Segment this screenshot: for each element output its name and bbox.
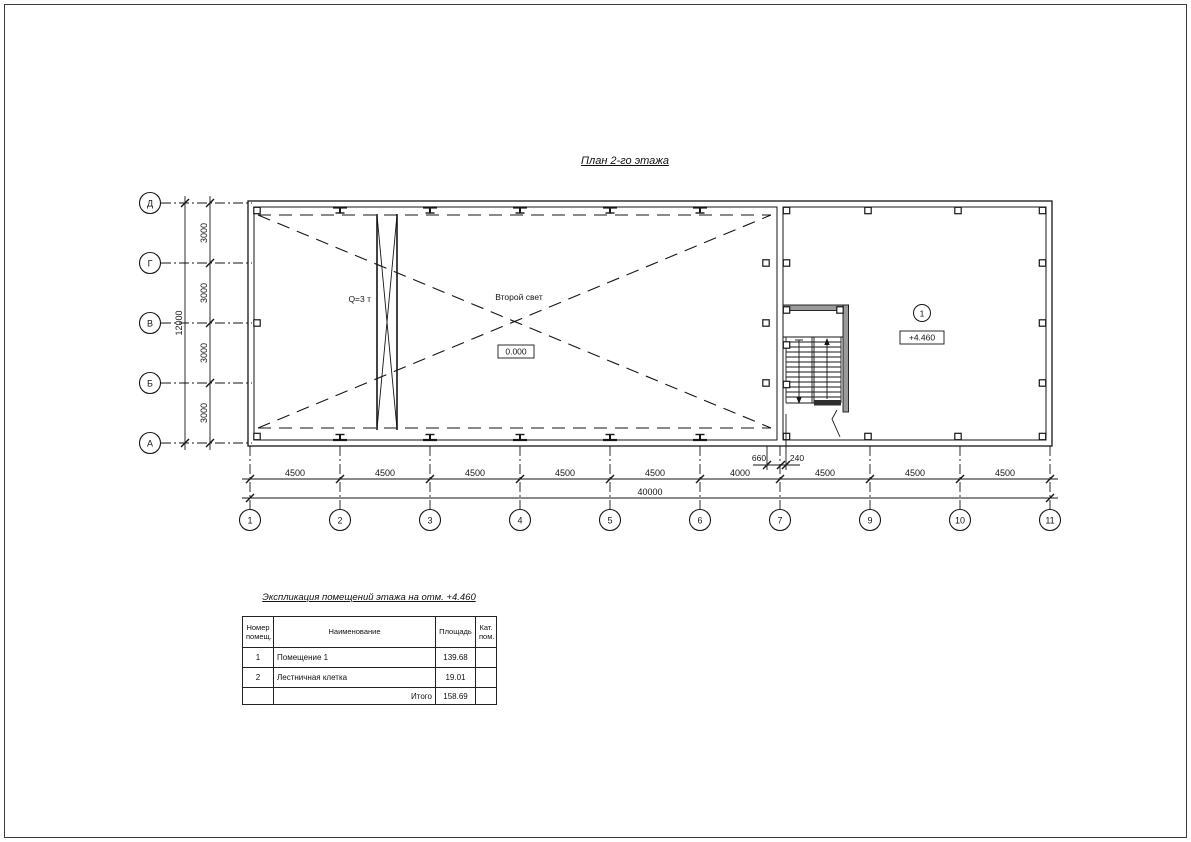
axis-label-a: А [147,439,153,449]
building-walls [248,201,1052,446]
dim-3000-4: 3000 [199,403,209,423]
dim-3000-3: 3000 [199,343,209,363]
header-area: Площадь [436,617,476,648]
dim-seg-6: 4000 [730,468,750,478]
axis-label-2: 2 [337,516,342,526]
cell-total-value: 158.69 [436,688,476,705]
cell-room-name: Помещение 1 [274,648,436,668]
room-number: 1 [920,309,925,319]
cell-total-label: Итого [274,688,436,705]
dim-seg-5: 4500 [645,468,665,478]
header-category: Кат. пом. [476,617,497,648]
cell-room-category [476,648,497,668]
floor-plan-svg: Q=3 т Второй свет 0.000 1 +4.460 [0,0,1191,842]
explication-table: Номер помещ. Наименование Площадь Кат. п… [242,616,497,705]
dim-seg-1: 4500 [285,468,305,478]
dim-40000: 40000 [637,487,662,497]
stair-wall-right [843,305,849,412]
dim-seg-9: 4500 [995,468,1015,478]
void-cross-lines [258,215,771,428]
dim-seg-3: 4500 [465,468,485,478]
header-room-number: Номер помещ. [243,617,274,648]
axis-label-5: 5 [607,516,612,526]
dim-seg-8: 4500 [905,468,925,478]
stair-flights [783,337,843,403]
axis-label-9: 9 [867,516,872,526]
dim-seg-2: 4500 [375,468,395,478]
axis-label-b: Б [147,379,153,389]
void-label: Второй свет [495,292,543,302]
axis-label-11: 11 [1045,516,1054,526]
door-swing [832,410,840,437]
dim-seg-4: 4500 [555,468,575,478]
table-row: 1 Помещение 1 139.68 [243,648,497,668]
axis-label-d: Д [147,199,153,209]
square-columns [254,207,1046,439]
left-axis-grid: Д Г В Б А [140,193,253,454]
table-total-row: Итого 158.69 [243,688,497,705]
explication-title: Экспликация помещений этажа на отм. +4.4… [242,592,496,603]
elevation-mark-ground: 0.000 [498,345,534,358]
dim-660: 660 [752,453,766,463]
cell-empty [243,688,274,705]
cell-room-number: 2 [243,668,274,688]
dim-3000-1: 3000 [199,223,209,243]
axis-label-3: 3 [427,516,432,526]
staircase [783,305,849,437]
axis-label-10: 10 [955,516,965,526]
axis-label-7: 7 [777,516,782,526]
cell-empty [476,688,497,705]
cell-room-category [476,668,497,688]
cell-room-number: 1 [243,648,274,668]
steel-columns-top-wall [333,208,707,214]
cad-sheet: План 2-го этажа [0,0,1191,842]
room-marker: 1 +4.460 [900,305,944,345]
bottom-dimensions: 660 240 4500 4500 4500 4500 4500 4000 45… [242,414,1058,502]
cell-room-area: 139.68 [436,648,476,668]
dim-12000: 12000 [174,310,184,335]
dim-240: 240 [790,453,804,463]
header-name: Наименование [274,617,436,648]
elevation-ground-value: 0.000 [505,347,527,357]
vertical-bracing [377,214,397,430]
room-elevation-value: +4.460 [909,333,936,343]
axis-label-4: 4 [517,516,522,526]
cell-room-name: Лестничная клетка [274,668,436,688]
steel-columns-bottom-wall [333,435,707,441]
explication: Экспликация помещений этажа на отм. +4.4… [242,592,496,705]
axis-label-1: 1 [247,516,252,526]
axis-label-6: 6 [697,516,702,526]
dim-seg-7: 4500 [815,468,835,478]
table-row: 2 Лестничная клетка 19.01 [243,668,497,688]
table-header-row: Номер помещ. Наименование Площадь Кат. п… [243,617,497,648]
axis-label-g: Г [148,259,153,269]
crane-capacity-label: Q=3 т [348,294,371,304]
stair-cut-mark [814,400,841,406]
dim-3000-2: 3000 [199,283,209,303]
cell-room-area: 19.01 [436,668,476,688]
axis-label-v: В [147,319,153,329]
